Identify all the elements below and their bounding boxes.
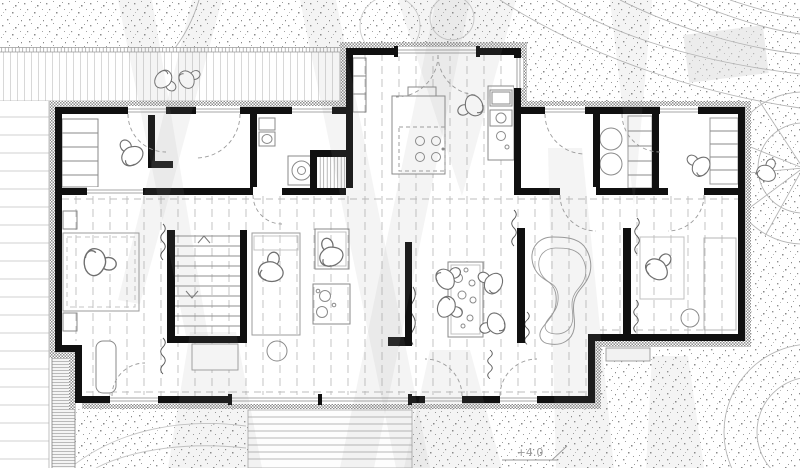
deck-edge-channel xyxy=(0,48,340,53)
window-entry-east xyxy=(514,58,523,88)
wall-fin-east-a xyxy=(517,228,525,343)
wall-fin-east-b xyxy=(623,228,631,334)
cooktop-or-oven xyxy=(490,110,512,126)
left-deck xyxy=(0,101,49,468)
door-right-hall-b-opening xyxy=(668,187,704,196)
window-south-small xyxy=(110,395,158,404)
partition-laundry-west xyxy=(593,114,600,188)
wall-west xyxy=(55,107,62,352)
left-deck-planks xyxy=(0,101,49,468)
cased-opening-hall xyxy=(87,187,143,196)
partition-room2-east xyxy=(250,114,257,195)
stair-wall-east xyxy=(240,230,247,338)
partition-hall-c xyxy=(282,188,346,195)
floor-plan-canvas: +4.0 xyxy=(0,0,800,468)
wall-east xyxy=(738,107,745,341)
wall-west-jog xyxy=(75,352,82,403)
partition-hall-a xyxy=(55,188,87,195)
door-wc-opening xyxy=(253,187,282,196)
door-south-b xyxy=(500,395,537,404)
partition-cellar-stair-side xyxy=(310,150,317,188)
wall-south-right xyxy=(595,334,745,341)
partition-right-hall-b xyxy=(596,188,668,195)
door-room2 xyxy=(196,106,240,115)
door-room-right xyxy=(660,106,698,115)
bathtub xyxy=(96,341,116,393)
partition-right-hall-c xyxy=(704,188,745,195)
kitchen-counter-sink xyxy=(488,86,514,160)
exterior-landing xyxy=(606,348,650,361)
door-pantry xyxy=(545,106,585,115)
level-annotation-text: +4.0 xyxy=(517,446,544,459)
ground-top-left xyxy=(0,0,340,47)
paving-patch xyxy=(683,25,768,82)
